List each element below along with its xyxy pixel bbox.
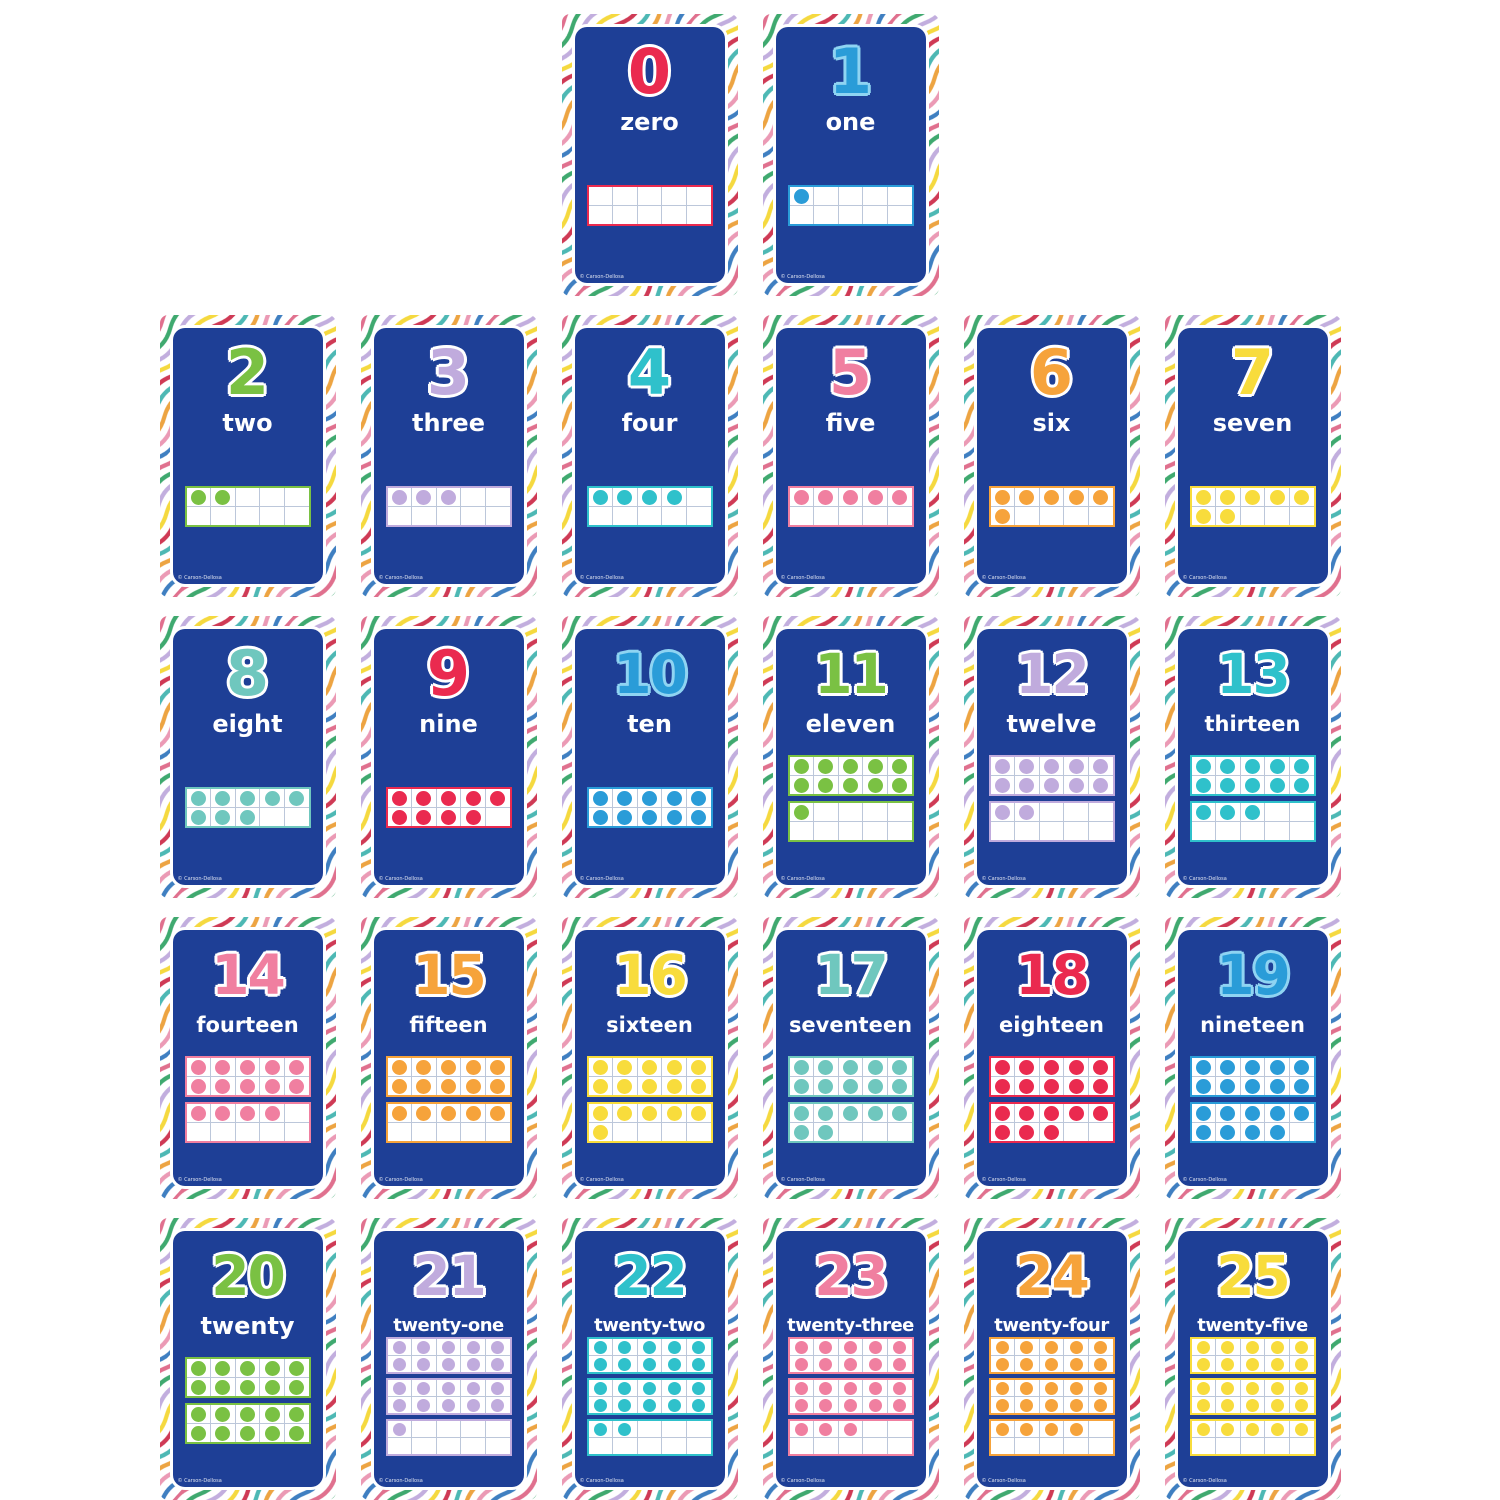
ten-frame-cell: [839, 803, 863, 821]
ten-frame: [989, 755, 1115, 796]
ten-frame-cell: [1064, 1421, 1088, 1437]
ten-frame-cell: [1216, 1077, 1240, 1095]
ten-frame-cell: [662, 1339, 686, 1355]
ten-frame-cell: [863, 1421, 887, 1437]
ten-frames: [185, 486, 311, 527]
ten-frame-cell: [437, 1438, 461, 1454]
card-number-word: twenty-two: [575, 1313, 725, 1339]
card-number-word: three: [374, 410, 524, 436]
ten-frame-cell: [260, 789, 284, 807]
ten-frame-cell: [1216, 757, 1240, 775]
ten-frame-cell: [236, 1104, 260, 1122]
ten-frame-cell: [991, 822, 1015, 840]
ten-frame-cell: [638, 1438, 662, 1454]
counting-dot: [668, 1382, 681, 1395]
counting-dot: [667, 1106, 682, 1121]
counting-dot: [441, 490, 456, 505]
counting-dot: [1196, 1106, 1211, 1121]
ten-frame-cell: [1089, 1380, 1113, 1396]
ten-frame-cell: [187, 507, 211, 525]
ten-frame-cell: [461, 1104, 485, 1122]
counting-dot: [995, 509, 1010, 524]
counting-dot: [1246, 1423, 1259, 1436]
counting-dot: [417, 1358, 430, 1371]
ten-frame-cell: [1265, 507, 1289, 525]
ten-frames: [1190, 755, 1316, 842]
card-panel: 20 twenty © Carson-Dellosa: [173, 1231, 323, 1487]
ten-frame-cell: [991, 1356, 1015, 1372]
ten-frame-cell: [1064, 1380, 1088, 1396]
copyright-text: © Carson-Dellosa: [580, 1478, 624, 1484]
ten-frame: [386, 1419, 512, 1456]
counting-dot: [691, 1079, 706, 1094]
flashcard-17: 17 seventeen © Carson-Dellosa: [763, 917, 939, 1199]
ten-frame-cell: [260, 507, 284, 525]
ten-frame-cell: [1192, 507, 1216, 525]
ten-frame-cell: [1192, 1438, 1216, 1454]
counting-dot: [1196, 759, 1211, 774]
counting-dot: [868, 759, 883, 774]
ten-frame-cell: [486, 1339, 510, 1355]
ten-frame-cell: [187, 808, 211, 826]
counting-dot: [869, 1399, 882, 1412]
counting-dot: [643, 1382, 656, 1395]
card-number-word: two: [173, 410, 323, 436]
ten-frame-cell: [236, 1424, 260, 1442]
ten-frame: [587, 787, 713, 828]
counting-dot: [1093, 778, 1108, 793]
ten-frame-cell: [839, 1356, 863, 1372]
counting-dot: [416, 1079, 431, 1094]
counting-dot: [1220, 509, 1235, 524]
ten-frame-cell: [613, 1123, 637, 1141]
card-panel: 3 three © Carson-Dellosa: [374, 328, 524, 584]
ten-frame-cell: [1265, 1123, 1289, 1141]
ten-frame-cell: [1040, 507, 1064, 525]
flashcard-14: 14 fourteen © Carson-Dellosa: [160, 917, 336, 1199]
ten-frame-cell: [863, 1397, 887, 1413]
ten-frame-cell: [1089, 1058, 1113, 1076]
counting-dot: [642, 1060, 657, 1075]
counting-dot: [442, 1358, 455, 1371]
ten-frame-cell: [662, 187, 686, 205]
ten-frame: [1190, 1337, 1316, 1374]
ten-frame-cell: [412, 1104, 436, 1122]
card-panel: 10 ten © Carson-Dellosa: [575, 629, 725, 885]
counting-dot: [795, 1399, 808, 1412]
ten-frame-cell: [589, 488, 613, 506]
ten-frame-cell: [437, 1421, 461, 1437]
card-row: 8 eight © Carson-Dellosa 9 nine © Carson…: [160, 616, 1341, 898]
counting-dot: [240, 1079, 255, 1094]
card-row: 2 two © Carson-Dellosa 3 three © Carson-…: [160, 315, 1341, 597]
counting-dot: [466, 791, 481, 806]
counting-dot: [1294, 490, 1309, 505]
ten-frame-cell: [991, 757, 1015, 775]
ten-frame: [788, 755, 914, 796]
counting-dot: [617, 1060, 632, 1075]
counting-dot: [215, 1407, 230, 1422]
ten-frame-cell: [1216, 1421, 1240, 1437]
counting-dot: [240, 1361, 255, 1376]
ten-frame-cell: [790, 1380, 814, 1396]
counting-dot: [191, 490, 206, 505]
ten-frame-cell: [1040, 822, 1064, 840]
ten-frame: [989, 1419, 1115, 1456]
ten-frame-cell: [1265, 757, 1289, 775]
counting-dot: [490, 1106, 505, 1121]
counting-dot: [240, 1106, 255, 1121]
ten-frame: [386, 1337, 512, 1374]
card-number-word: ten: [575, 711, 725, 737]
counting-dot: [818, 1079, 833, 1094]
ten-frames: [788, 755, 914, 842]
counting-dot: [892, 490, 907, 505]
ten-frame-cell: [687, 1380, 711, 1396]
card-panel: 9 nine © Carson-Dellosa: [374, 629, 524, 885]
counting-dot: [618, 1341, 631, 1354]
ten-frame-cell: [589, 1077, 613, 1095]
counting-dot: [892, 1060, 907, 1075]
ten-frame-cell: [1089, 1397, 1113, 1413]
ten-frame-cell: [839, 776, 863, 794]
counting-dot: [892, 1106, 907, 1121]
ten-frame-cell: [1192, 488, 1216, 506]
ten-frame-cell: [814, 1397, 838, 1413]
ten-frame: [386, 1102, 512, 1143]
copyright-text: © Carson-Dellosa: [781, 876, 825, 882]
counting-dot: [795, 1382, 808, 1395]
ten-frame-cell: [888, 1421, 912, 1437]
ten-frame-cell: [638, 808, 662, 826]
counting-dot: [995, 1060, 1010, 1075]
card-number: 6: [977, 336, 1127, 410]
counting-dot: [1019, 759, 1034, 774]
counting-dot: [692, 1399, 705, 1412]
ten-frame-cell: [589, 507, 613, 525]
counting-dot: [1196, 805, 1211, 820]
ten-frame-cell: [613, 206, 637, 224]
counting-dot: [441, 1106, 456, 1121]
ten-frame-cell: [888, 507, 912, 525]
copyright-text: © Carson-Dellosa: [781, 575, 825, 581]
ten-frame-cell: [1216, 1104, 1240, 1122]
ten-frame-cell: [991, 1077, 1015, 1095]
ten-frame-cell: [1089, 1077, 1113, 1095]
flashcard-8: 8 eight © Carson-Dellosa: [160, 616, 336, 898]
ten-frame: [1190, 1056, 1316, 1097]
counting-dot: [289, 1079, 304, 1094]
ten-frame-cell: [687, 187, 711, 205]
counting-dot: [1019, 1106, 1034, 1121]
ten-frame-cell: [613, 1438, 637, 1454]
card-number-word: seven: [1178, 410, 1328, 436]
ten-frame-cell: [1290, 1123, 1314, 1141]
card-number: 8: [173, 637, 323, 711]
ten-frame-cell: [1040, 1058, 1064, 1076]
counting-dot: [794, 759, 809, 774]
ten-frame-cell: [613, 1058, 637, 1076]
card-number: 11: [776, 637, 926, 711]
ten-frame-cell: [790, 1077, 814, 1095]
ten-frame-cell: [991, 1104, 1015, 1122]
counting-dot: [1245, 759, 1260, 774]
counting-dot: [265, 1407, 280, 1422]
ten-frames: [1190, 1056, 1316, 1143]
card-number: 19: [1178, 938, 1328, 1012]
card-panel: 23 twenty-three © Carson-Dellosa: [776, 1231, 926, 1487]
counting-dot: [393, 1358, 406, 1371]
ten-frame-cell: [1265, 1421, 1289, 1437]
counting-dot: [794, 1079, 809, 1094]
ten-frame-cell: [211, 1405, 235, 1423]
counting-dot: [995, 778, 1010, 793]
card-number-word: twenty-five: [1178, 1313, 1328, 1339]
ten-frame-cell: [1290, 507, 1314, 525]
ten-frame-cell: [1290, 1339, 1314, 1355]
counting-dot: [392, 490, 407, 505]
card-number: 13: [1178, 637, 1328, 711]
card-number-word: twenty-one: [374, 1313, 524, 1339]
counting-dot: [819, 1399, 832, 1412]
ten-frame: [788, 486, 914, 527]
counting-dot: [416, 810, 431, 825]
ten-frame-cell: [260, 1058, 284, 1076]
flashcard-9: 9 nine © Carson-Dellosa: [361, 616, 537, 898]
counting-dot: [995, 1079, 1010, 1094]
ten-frame-cell: [638, 206, 662, 224]
ten-frame-cell: [211, 1104, 235, 1122]
ten-frame-cell: [638, 1421, 662, 1437]
counting-dot: [893, 1399, 906, 1412]
ten-frame-cell: [991, 1438, 1015, 1454]
ten-frame: [1190, 1378, 1316, 1415]
counting-dot: [892, 778, 907, 793]
counting-dot: [594, 1358, 607, 1371]
counting-dot: [215, 1426, 230, 1441]
ten-frame: [989, 486, 1115, 527]
ten-frame-cell: [437, 1397, 461, 1413]
ten-frame-cell: [1290, 1438, 1314, 1454]
counting-dot: [1270, 1079, 1285, 1094]
counting-dot: [441, 791, 456, 806]
ten-frame-cell: [687, 1397, 711, 1413]
copyright-text: © Carson-Dellosa: [379, 876, 423, 882]
card-number: 22: [575, 1239, 725, 1313]
ten-frames: [587, 1056, 713, 1143]
ten-frame-cell: [187, 1058, 211, 1076]
copyright-text: © Carson-Dellosa: [781, 274, 825, 280]
counting-dot: [1093, 1079, 1108, 1094]
counting-dot: [818, 759, 833, 774]
flashcard-16: 16 sixteen © Carson-Dellosa: [562, 917, 738, 1199]
ten-frame-cell: [285, 1378, 309, 1396]
ten-frame-cell: [1064, 488, 1088, 506]
ten-frame-cell: [486, 507, 510, 525]
counting-dot: [691, 1060, 706, 1075]
card-panel: 1 one © Carson-Dellosa: [776, 27, 926, 283]
ten-frame-cell: [1015, 1421, 1039, 1437]
counting-dot: [618, 1423, 631, 1436]
ten-frame-cell: [839, 507, 863, 525]
ten-frame-cell: [388, 1421, 412, 1437]
ten-frame-cell: [437, 488, 461, 506]
counting-dot: [393, 1341, 406, 1354]
ten-frame-cell: [1040, 803, 1064, 821]
flashcard-23: 23 twenty-three © Carson-Dellosa: [763, 1218, 939, 1500]
ten-frame-cell: [1290, 1356, 1314, 1372]
ten-frame-cell: [461, 1397, 485, 1413]
flashcard-12: 12 twelve © Carson-Dellosa: [964, 616, 1140, 898]
ten-frame-cell: [662, 1421, 686, 1437]
ten-frame-cell: [1040, 1339, 1064, 1355]
card-number: 2: [173, 336, 323, 410]
ten-frame-cell: [1040, 1438, 1064, 1454]
ten-frame-cell: [613, 1339, 637, 1355]
ten-frame-cell: [388, 1123, 412, 1141]
ten-frame-cell: [260, 1104, 284, 1122]
counting-dot: [215, 1060, 230, 1075]
copyright-text: © Carson-Dellosa: [982, 1478, 1026, 1484]
counting-dot: [289, 791, 304, 806]
counting-dot: [215, 1380, 230, 1395]
counting-dot: [643, 1358, 656, 1371]
ten-frame-cell: [888, 822, 912, 840]
flashcard-21: 21 twenty-one © Carson-Dellosa: [361, 1218, 537, 1500]
ten-frame-cell: [790, 187, 814, 205]
ten-frames: [989, 1056, 1115, 1143]
ten-frame-cell: [1064, 776, 1088, 794]
ten-frame-cell: [437, 507, 461, 525]
ten-frame-cell: [1241, 776, 1265, 794]
ten-frame-cell: [285, 488, 309, 506]
ten-frame-cell: [1064, 1058, 1088, 1076]
counting-dot: [1245, 805, 1260, 820]
counting-dot: [441, 810, 456, 825]
counting-dot: [392, 1079, 407, 1094]
counting-dot: [191, 810, 206, 825]
ten-frames: [587, 486, 713, 527]
copyright-text: © Carson-Dellosa: [1183, 1177, 1227, 1183]
ten-frame-cell: [412, 1077, 436, 1095]
ten-frame-cell: [662, 1438, 686, 1454]
ten-frame-cell: [687, 206, 711, 224]
ten-frame-cell: [863, 1058, 887, 1076]
ten-frame-cell: [260, 1359, 284, 1377]
copyright-text: © Carson-Dellosa: [781, 1177, 825, 1183]
ten-frame-cell: [589, 1421, 613, 1437]
counting-dot: [844, 1382, 857, 1395]
ten-frame-cell: [388, 808, 412, 826]
counting-dot: [1196, 778, 1211, 793]
counting-dot: [289, 1060, 304, 1075]
counting-dot: [289, 1426, 304, 1441]
ten-frame-cell: [211, 1378, 235, 1396]
ten-frame-cell: [814, 1356, 838, 1372]
ten-frame-cell: [1216, 1339, 1240, 1355]
ten-frames: [185, 787, 311, 828]
ten-frame-cell: [1192, 1421, 1216, 1437]
counting-dot: [643, 1399, 656, 1412]
ten-frame-cell: [211, 1424, 235, 1442]
counting-dot: [1197, 1382, 1210, 1395]
ten-frame-cell: [839, 1438, 863, 1454]
counting-dot: [692, 1341, 705, 1354]
ten-frame-cell: [388, 1339, 412, 1355]
counting-dot: [819, 1341, 832, 1354]
ten-frame-cell: [814, 776, 838, 794]
card-panel: 25 twenty-five © Carson-Dellosa: [1178, 1231, 1328, 1487]
counting-dot: [1221, 1358, 1234, 1371]
ten-frame-cell: [863, 507, 887, 525]
counting-dot: [996, 1399, 1009, 1412]
ten-frame-cell: [863, 187, 887, 205]
counting-dot: [617, 1106, 632, 1121]
counting-dot: [593, 1125, 608, 1140]
ten-frame-cell: [687, 1104, 711, 1122]
card-number: 10: [575, 637, 725, 711]
ten-frame-cell: [1015, 1356, 1039, 1372]
counting-dot: [844, 1399, 857, 1412]
ten-frame-cell: [888, 1356, 912, 1372]
ten-frame-cell: [687, 488, 711, 506]
counting-dot: [1220, 1060, 1235, 1075]
ten-frame-cell: [1089, 757, 1113, 775]
counting-dot: [1245, 778, 1260, 793]
card-number: 15: [374, 938, 524, 1012]
counting-dot: [441, 1060, 456, 1075]
ten-frame-cell: [662, 1123, 686, 1141]
counting-dot: [1093, 1106, 1108, 1121]
ten-frame-cell: [888, 1339, 912, 1355]
card-panel: 19 nineteen © Carson-Dellosa: [1178, 930, 1328, 1186]
counting-dot: [794, 805, 809, 820]
ten-frame-cell: [662, 1397, 686, 1413]
ten-frame-cell: [638, 1058, 662, 1076]
ten-frame-cell: [638, 789, 662, 807]
counting-dot: [191, 1407, 206, 1422]
counting-dot: [1196, 1079, 1211, 1094]
counting-dot: [893, 1341, 906, 1354]
ten-frame: [989, 1337, 1115, 1374]
ten-frame-cell: [1064, 803, 1088, 821]
counting-dot: [593, 490, 608, 505]
counting-dot: [667, 791, 682, 806]
counting-dot: [1246, 1382, 1259, 1395]
ten-frame-cell: [814, 488, 838, 506]
ten-frame: [1190, 1102, 1316, 1143]
counting-dot: [1220, 1079, 1235, 1094]
ten-frame-cell: [1216, 488, 1240, 506]
counting-dot: [1019, 490, 1034, 505]
counting-dot: [668, 1399, 681, 1412]
counting-dot: [643, 1341, 656, 1354]
ten-frame-cell: [863, 488, 887, 506]
card-number-word: eighteen: [977, 1012, 1127, 1038]
counting-dot: [392, 791, 407, 806]
counting-dot: [843, 490, 858, 505]
ten-frame-cell: [285, 1104, 309, 1122]
counting-dot: [996, 1358, 1009, 1371]
ten-frame-cell: [991, 803, 1015, 821]
ten-frame-cell: [1216, 1356, 1240, 1372]
ten-frame-cell: [662, 488, 686, 506]
ten-frame-cell: [1015, 1397, 1039, 1413]
counting-dot: [1295, 1399, 1308, 1412]
counting-dot: [1069, 1079, 1084, 1094]
counting-dot: [1019, 1079, 1034, 1094]
counting-dot: [691, 791, 706, 806]
